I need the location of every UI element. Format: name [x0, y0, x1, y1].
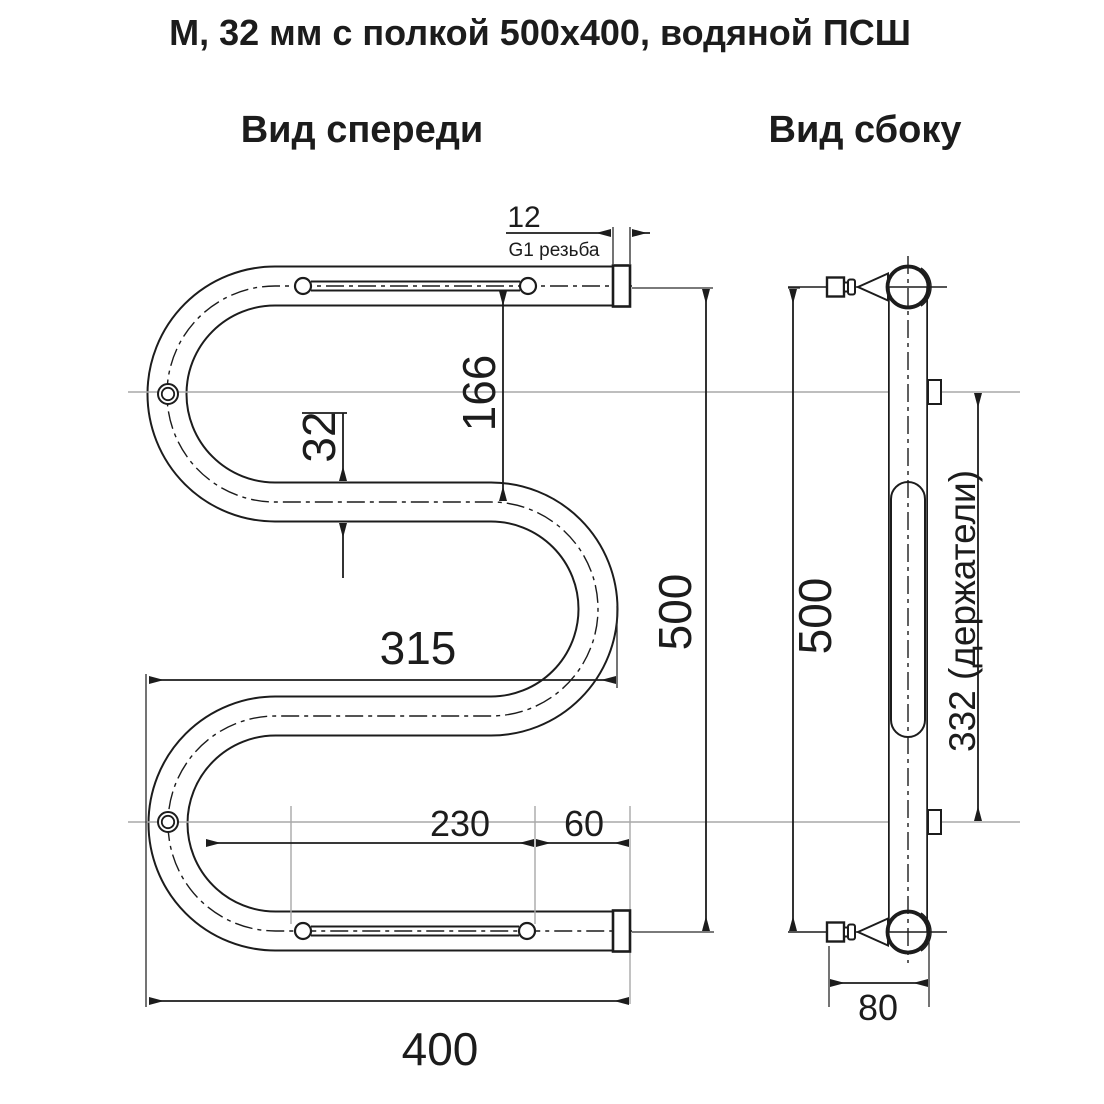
nipple-collar [848, 280, 855, 295]
front-view-pipe [167, 286, 630, 931]
shelf-holder-circle [520, 278, 536, 294]
drawing-svg: М, 32 мм с полкой 500х400, водяной ПСШ В… [0, 0, 1104, 1104]
front-view-label: Вид спереди [241, 109, 484, 151]
wall-bracket-upper [158, 384, 178, 404]
shelf-holder-circle [295, 278, 311, 294]
dim-32-value: 32 [293, 411, 345, 462]
dim-12-value: 12 [507, 201, 540, 234]
holder-tab-lower [928, 810, 941, 834]
thread-fitting-top [613, 266, 630, 307]
dim-166-value: 166 [453, 355, 505, 432]
thread-note: G1 резьба [509, 240, 600, 261]
dim-230-value: 230 [430, 803, 490, 844]
side-top-connection [788, 267, 947, 308]
dim-400-value: 400 [402, 1023, 479, 1075]
shelf-holder-circle [519, 923, 535, 939]
thread-fitting-bottom [613, 911, 630, 952]
dimension-lines [149, 233, 978, 1001]
dim-332-value: 332 (держатели) [942, 470, 983, 752]
union-nut [827, 923, 844, 942]
pipe-end-circle-bottom [888, 912, 929, 953]
holder-tab-upper [928, 380, 941, 404]
union-nut [827, 278, 844, 297]
side-view-label: Вид сбоку [769, 109, 962, 151]
side-view-pipe [891, 256, 925, 963]
pipe-centerline [167, 286, 632, 931]
dim-500-front-value: 500 [649, 574, 701, 651]
dim-315-value: 315 [380, 622, 457, 674]
drawing-title: М, 32 мм с полкой 500х400, водяной ПСШ [169, 12, 911, 53]
side-bottom-connection [788, 912, 947, 953]
nipple-collar [848, 925, 855, 940]
wall-bracket-lower [158, 812, 178, 832]
cone-fitting [858, 274, 888, 301]
cone-fitting [858, 919, 888, 946]
technical-drawing: М, 32 мм с полкой 500х400, водяной ПСШ В… [0, 0, 1104, 1104]
shelf-holder-circle [295, 923, 311, 939]
dim-500-side-value: 500 [789, 578, 841, 655]
pipe-end-circle-top [888, 267, 929, 308]
dim-60-value: 60 [564, 803, 604, 844]
dim-80-value: 80 [858, 987, 898, 1028]
